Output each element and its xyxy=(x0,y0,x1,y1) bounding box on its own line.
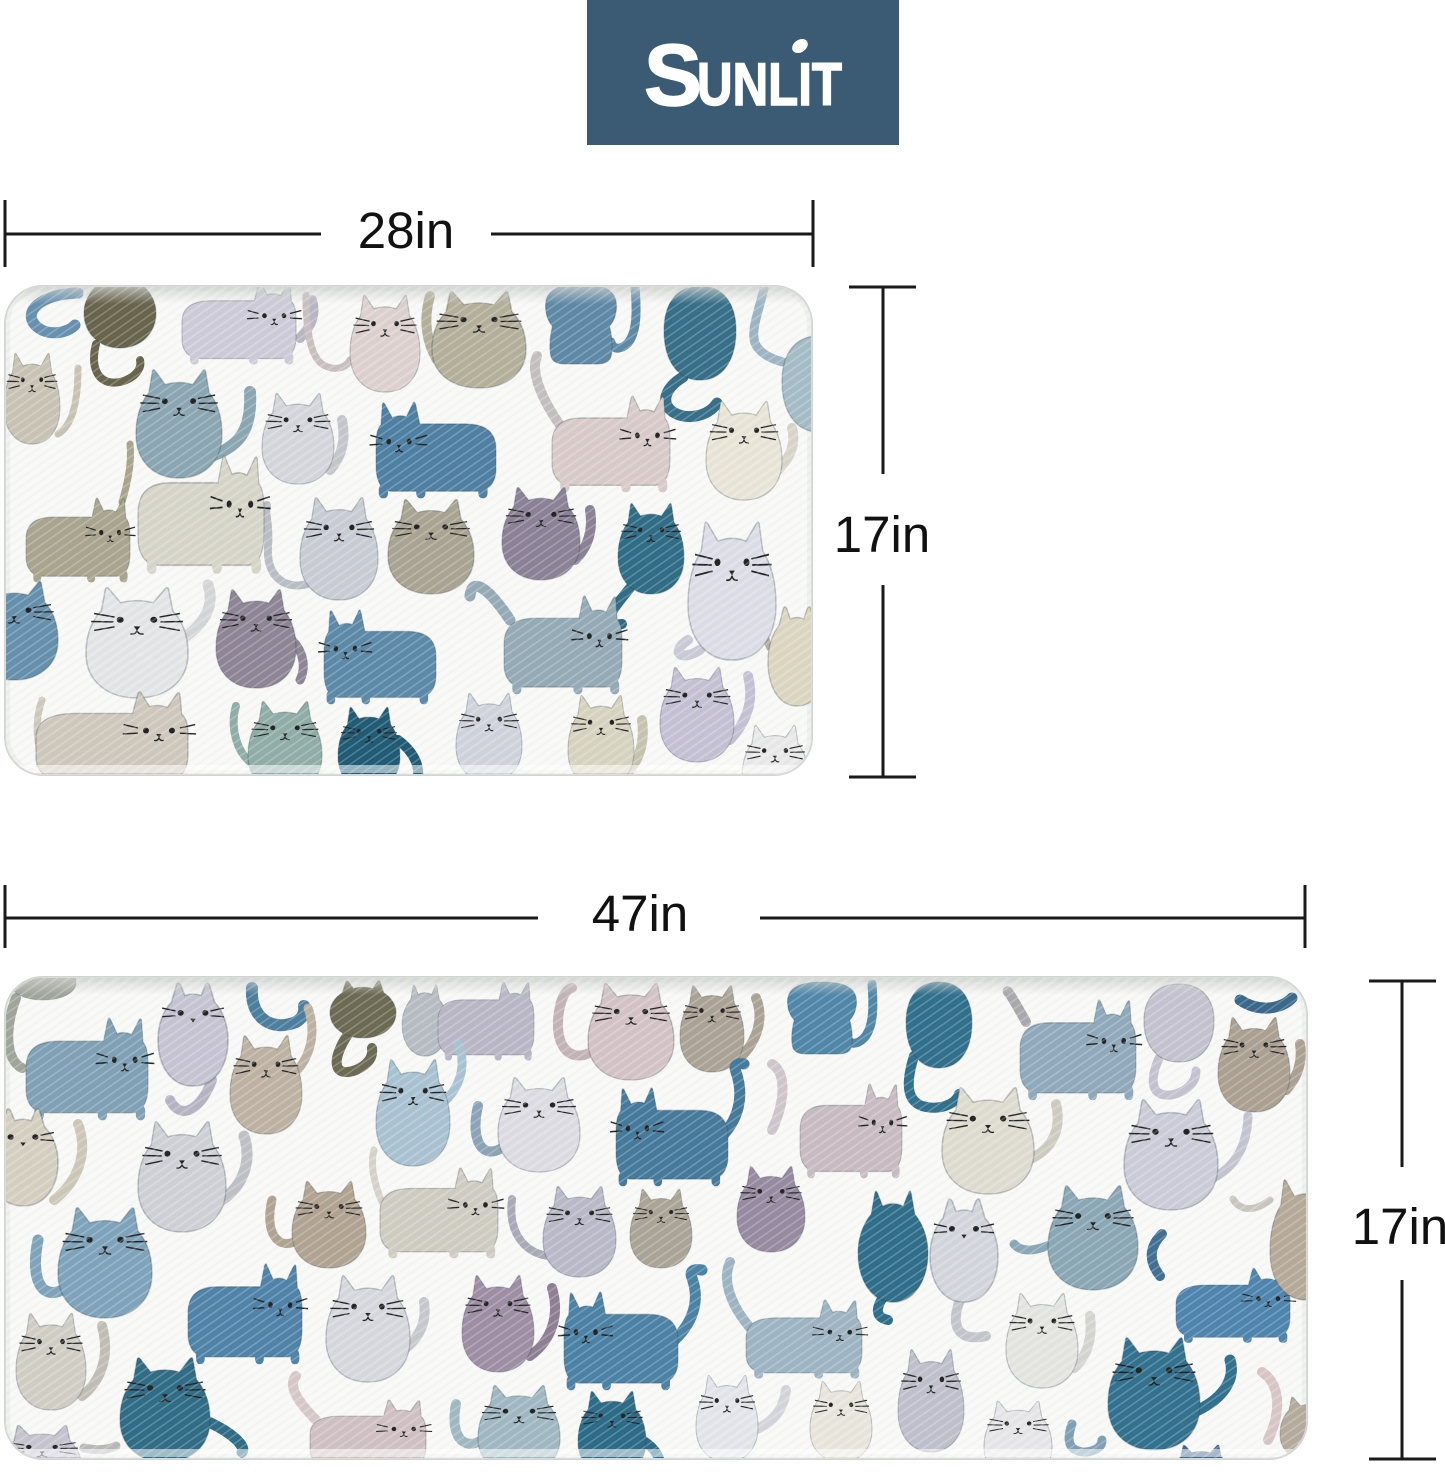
svg-text:47in: 47in xyxy=(592,885,688,942)
svg-text:17in: 17in xyxy=(1352,1198,1445,1255)
svg-text:S: S xyxy=(644,27,702,124)
svg-text:28in: 28in xyxy=(358,202,454,259)
svg-text:17in: 17in xyxy=(834,506,930,563)
svg-text:UNLIT: UNLIT xyxy=(697,51,842,118)
